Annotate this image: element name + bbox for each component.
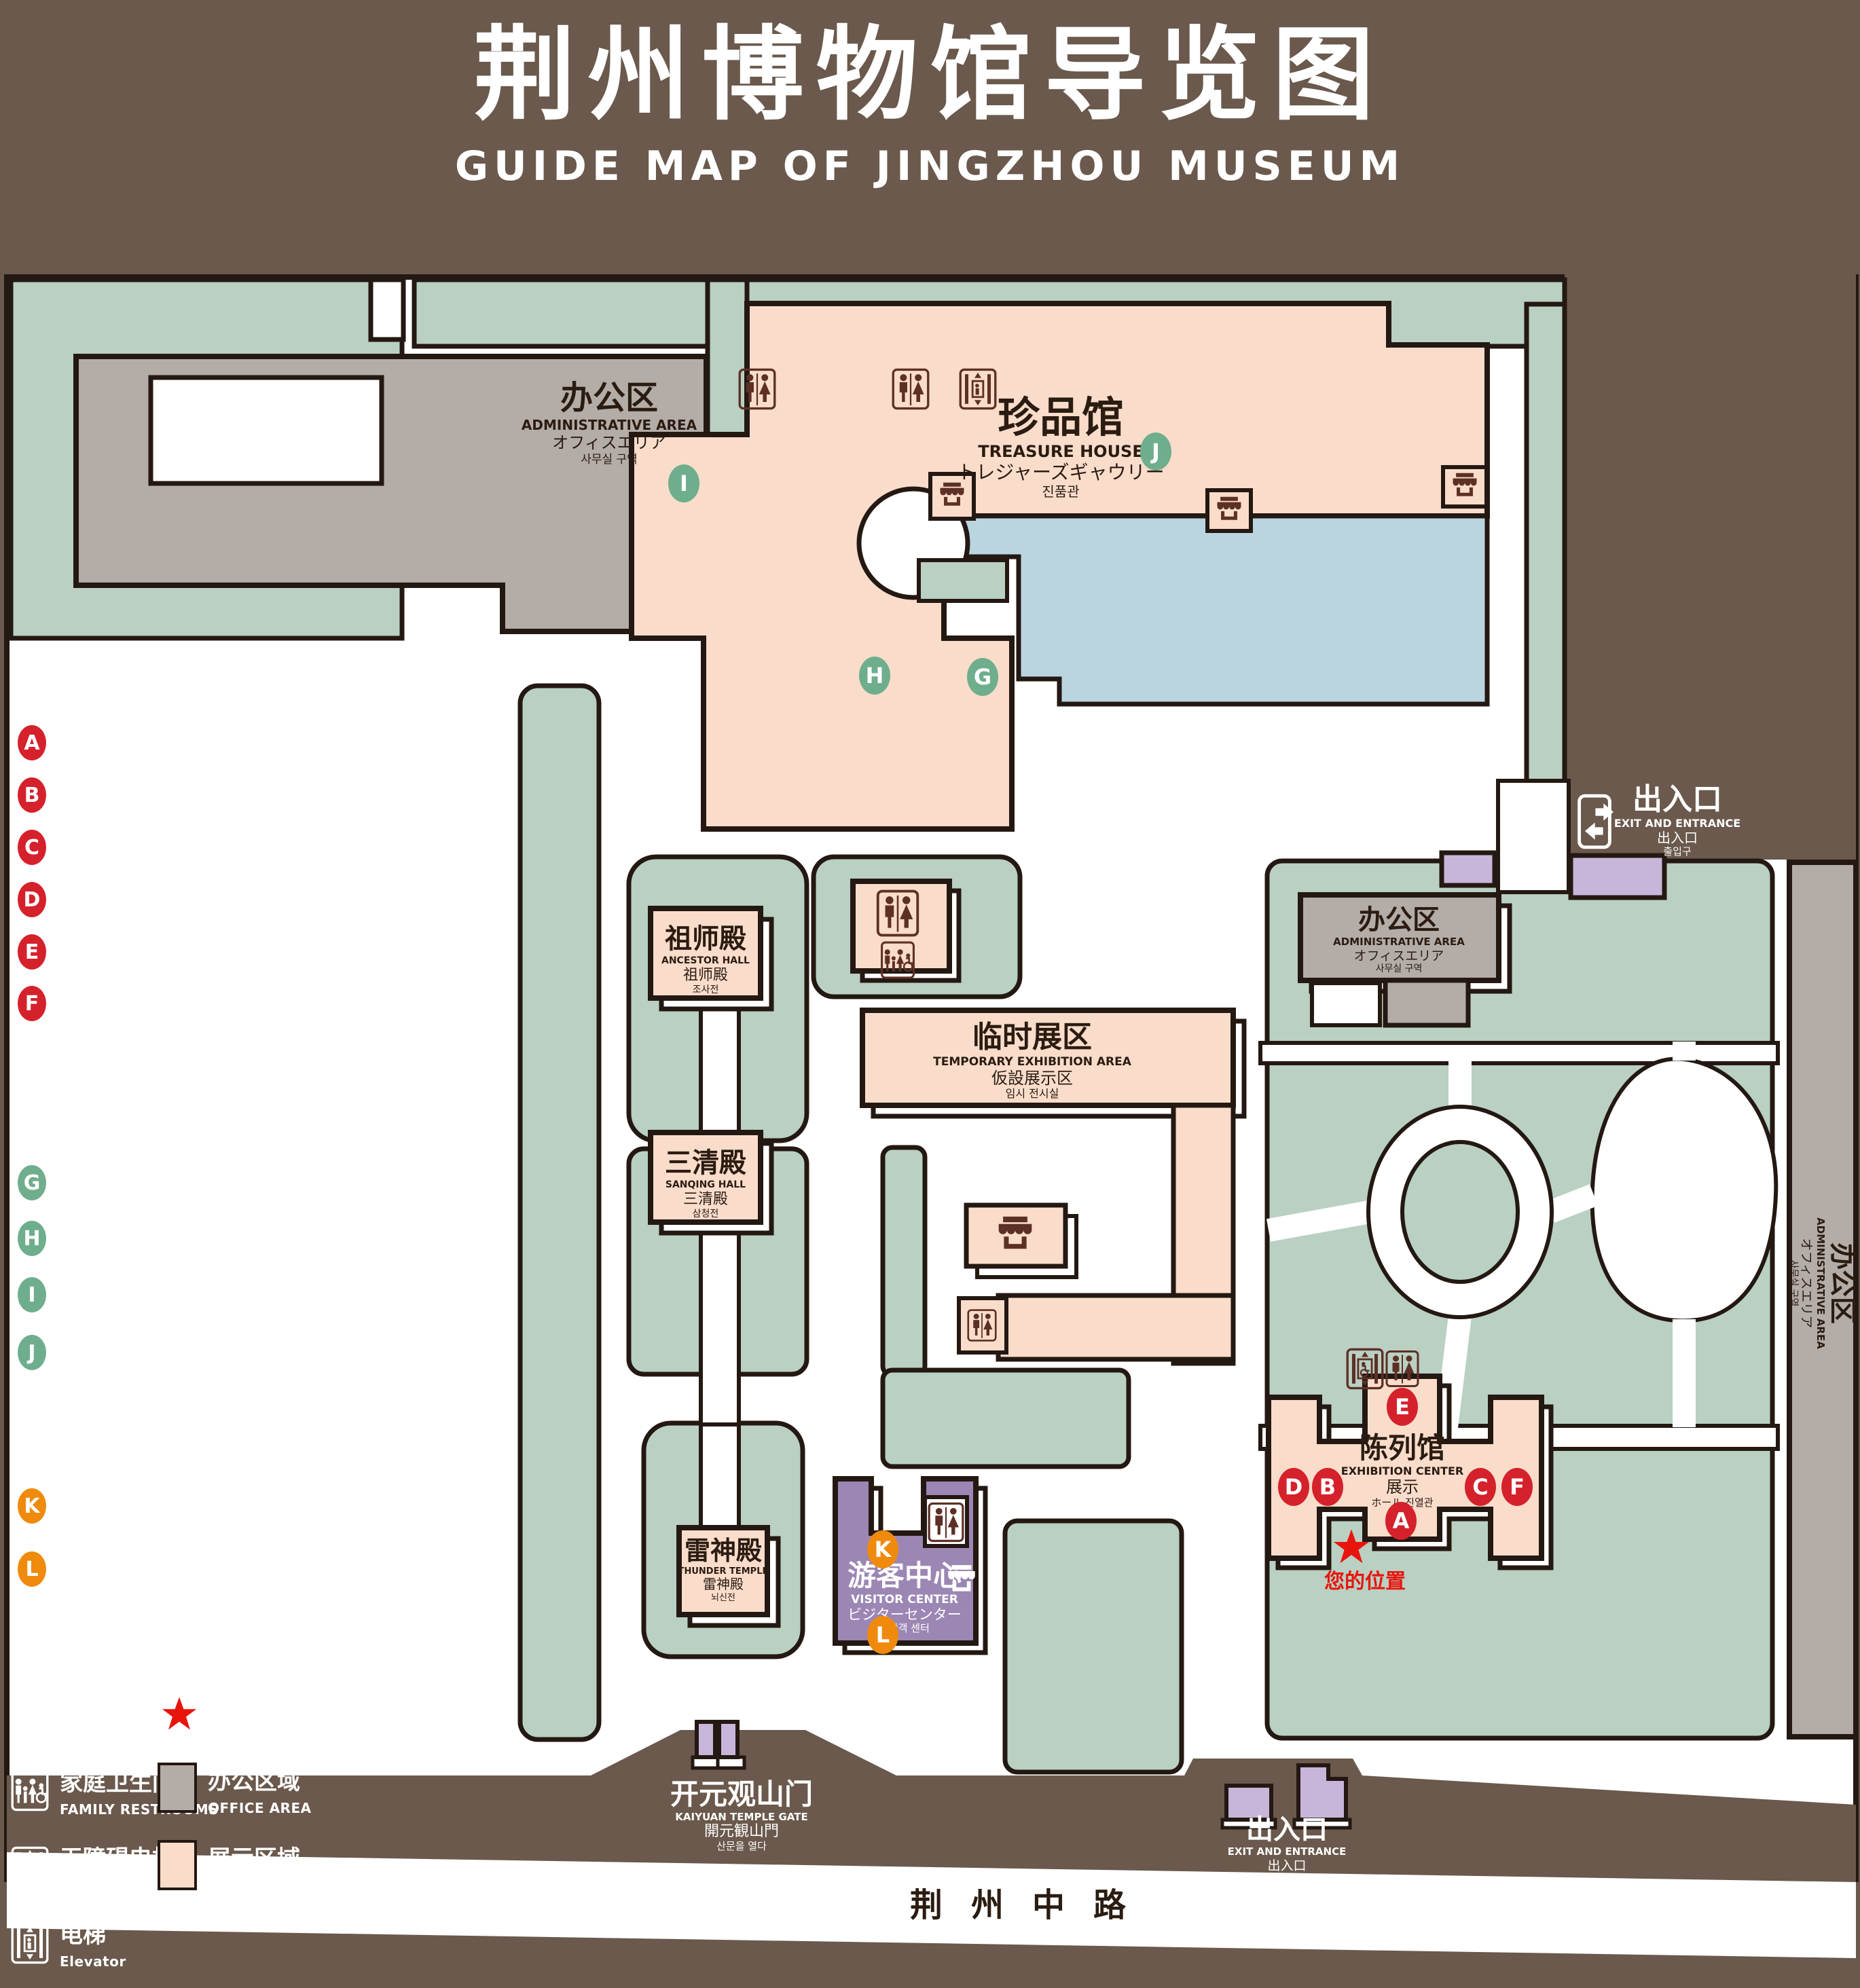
marker-B: B xyxy=(1312,1468,1343,1506)
label-sanqing-hall: 三清殿 SANQING HALL 三清殿 삼청전 xyxy=(665,1147,746,1219)
lawn-south-block xyxy=(1005,1521,1182,1772)
legend-section-visitor: 游客中心 VISITOR CENTER xyxy=(18,1434,448,1491)
badge-I: I xyxy=(18,1277,46,1312)
legend-restrooms: 卫生间RESTROOMS xyxy=(11,1688,158,1742)
label-temporary-exhibition: 临时展区 TEMPORARY EXHIBITION AREA 仮設展示区 임시 … xyxy=(933,1020,1131,1101)
site-map-graphics xyxy=(0,0,1860,1988)
legend-exit: 出入口EXIT AND ENTRANCE xyxy=(158,1602,374,1665)
treasure-green-patch xyxy=(919,560,1007,601)
corridor-1 xyxy=(701,997,739,1150)
badge-G: G xyxy=(18,1165,46,1200)
building-store-mid xyxy=(966,1205,1065,1266)
path-horizontal-1 xyxy=(1260,1043,1778,1063)
label-exit-right: 出入口 EXIT AND ENTRANCE 出入口 출입구 xyxy=(1614,782,1740,858)
marker-A: A xyxy=(1385,1502,1417,1540)
store-icon xyxy=(11,1610,49,1658)
marker-I: I xyxy=(668,464,699,502)
label-admin-right: 办公区 ADMINISTRATIVE AREA オフィスエリア 사무실 구역 xyxy=(1787,1217,1858,1349)
legend-store: 文创商店STORE xyxy=(11,1610,152,1664)
label-exhibition-center: 陈列馆 EXHIBITION CENTER 展示 ホール 진열관 xyxy=(1341,1431,1463,1509)
pond xyxy=(1592,1059,1776,1321)
location-star-icon xyxy=(160,1695,198,1733)
badge-J: J xyxy=(18,1335,46,1370)
gate-pillar-1 xyxy=(697,1722,715,1757)
elevator-icon xyxy=(11,1916,49,1970)
marker-K: K xyxy=(867,1530,898,1568)
badge-H: H xyxy=(18,1221,46,1256)
label-ancestor-hall: 祖师殿 ANCESTOR HALL 祖师殿 조사전 xyxy=(661,923,750,995)
legend-elevator: 电梯Elevator xyxy=(11,1916,126,1970)
badge-C: C xyxy=(18,830,46,865)
marker-J: J xyxy=(1140,432,1171,471)
legend-office-area: 办公区域OFFICE AREA xyxy=(158,1763,312,1816)
label-treasure-house: 珍品馆 TREASURE HOUSE トレジャーズギャウリー 진품관 xyxy=(957,392,1164,500)
label-visitor-center: 游客中心 VISITOR CENTER ビジターセンター 관광객 센터 xyxy=(847,1559,962,1635)
label-exit-bottom: 出入口 EXIT AND ENTRANCE 出入口 출입구 xyxy=(1228,1814,1347,1885)
marker-C: C xyxy=(1465,1468,1496,1506)
store-tab-2 xyxy=(1207,490,1251,531)
lawn-notch xyxy=(371,280,403,339)
gate-pillar-2 xyxy=(719,1722,737,1757)
lawn-visitor-north xyxy=(883,1370,1129,1467)
marker-D: D xyxy=(1278,1468,1309,1506)
page-title: 荆州博物馆导览图 xyxy=(0,12,1860,140)
admin-top-courtyard xyxy=(151,378,382,483)
badge-K: K xyxy=(18,1488,46,1524)
badge-A: A xyxy=(18,725,46,760)
exit-path-right xyxy=(1498,781,1569,892)
admin-mid-tab xyxy=(1385,980,1468,1025)
marker-E: E xyxy=(1387,1388,1418,1426)
booth-right-exit-2 xyxy=(1571,855,1664,898)
legend-display-area: 展示区域DISPLAY AREA xyxy=(158,1840,321,1894)
label-road: 荆州中路 xyxy=(910,1886,1154,1925)
label-admin-top: 办公区 ADMINISTRATIVE AREA オフィスエリア 사무실 구역 xyxy=(522,379,697,466)
marker-L: L xyxy=(867,1616,898,1654)
page-subtitle: GUIDE MAP OF JINGZHOU MUSEUM xyxy=(0,143,1860,190)
booth-right-exit-1 xyxy=(1442,853,1495,885)
temp-wing-south xyxy=(998,1295,1233,1359)
exit-icon xyxy=(158,1602,200,1663)
legend-section-treasure: 珍品馆 TREASURE HOUSE xyxy=(18,1109,431,1166)
badge-D: D xyxy=(18,882,46,917)
store-tab-3 xyxy=(1443,467,1487,507)
lawn-left-strip xyxy=(520,686,599,1739)
garden-island xyxy=(1402,1142,1518,1282)
legend-your-location: 您的位置YOUR LOCATION xyxy=(160,1695,337,1748)
display-area-swatch xyxy=(158,1840,197,1890)
label-thunder-temple: 雷神殿 THUNDER TEMPLE 雷神殿 뇌신전 xyxy=(678,1536,769,1603)
lawn-right-strip xyxy=(1527,304,1565,788)
family-restroom-icon xyxy=(11,1764,49,1817)
corridor-3 xyxy=(701,1424,739,1529)
marker-G: G xyxy=(967,658,998,696)
accessible-elevator-icon xyxy=(11,1840,49,1894)
admin-mid-courtyard xyxy=(1312,983,1380,1025)
badge-F: F xyxy=(18,986,46,1021)
badge-E: E xyxy=(18,934,46,970)
badge-B: B xyxy=(18,777,46,813)
office-area-swatch xyxy=(158,1763,197,1813)
outside-corner xyxy=(1565,274,1856,860)
marker-H: H xyxy=(859,657,890,695)
accessible-elevator-icon xyxy=(1347,1349,1383,1388)
lawn-strip-mid2 xyxy=(883,1147,925,1376)
water-pool xyxy=(944,516,1487,704)
label-admin-mid: 办公区 ADMINISTRATIVE AREA オフィスエリア 사무실 구역 xyxy=(1333,904,1465,975)
label-your-location: 您的位置 xyxy=(1324,1570,1406,1594)
guide-map-poster: 荆州博物馆导览图 GUIDE MAP OF JINGZHOU MUSEUM 珍品… xyxy=(0,0,1860,1988)
restroom-icon xyxy=(11,1688,49,1739)
label-gate: 开元观山门 KAIYUAN TEMPLE GATE 開元観山門 산문을 열다 xyxy=(670,1778,813,1853)
marker-F: F xyxy=(1501,1468,1533,1506)
header: 荆州博物馆导览图 GUIDE MAP OF JINGZHOU MUSEUM xyxy=(0,0,1860,190)
temp-restroom-annex xyxy=(959,1298,1006,1352)
corridor-2 xyxy=(701,1213,739,1424)
badge-L: L xyxy=(18,1551,46,1587)
